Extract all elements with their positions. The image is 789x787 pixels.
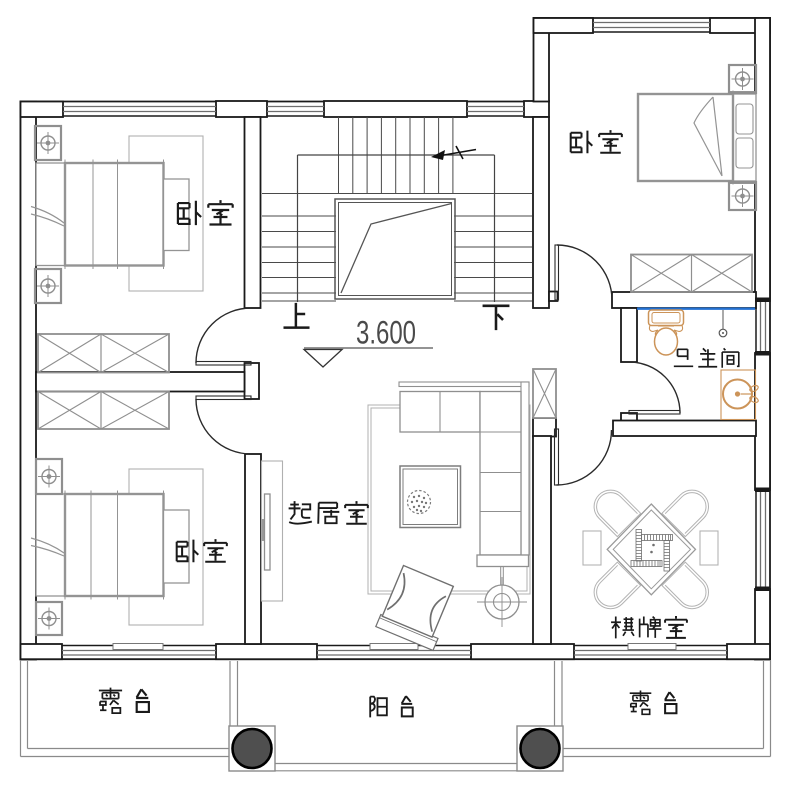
svg-text:3.600: 3.600	[356, 315, 416, 351]
